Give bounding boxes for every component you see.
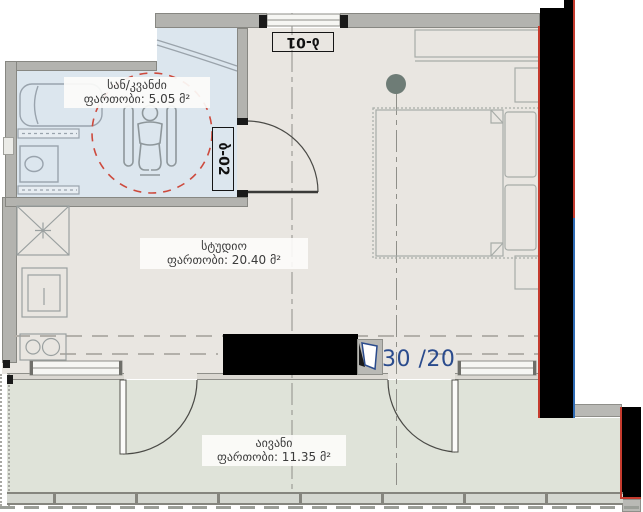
corner-column [622,407,641,499]
shaft-column [540,8,574,418]
wall-tick-balcony [7,375,13,384]
bathroom-floor-extension [157,28,237,71]
site-boundary-dashes [0,506,643,509]
studio-area: ფართობი: 20.40 მ² [140,254,308,268]
wall-balcony-band-3 [455,373,540,380]
wall-bathroom-bottom [5,197,248,207]
floor-plan: სან/კვანძი ფართობი: 5.05 მ² სტუდიო ფართო… [0,0,643,512]
corner-column-red-line [620,407,622,499]
doorstop-bath-bottom [237,190,248,197]
bathroom-label: სან/კვანძი ფართობი: 5.05 მ² [64,77,210,108]
tag-b01-text: ბ-01 [286,34,319,50]
doorstop-top-left [259,15,267,28]
section-marker-icon [357,339,383,375]
wall-niche [3,137,14,155]
wall-top-left-segment [155,13,267,28]
shaft-right-blue-line [573,218,575,418]
bathroom-area: ფართობი: 5.05 მ² [64,93,210,107]
bathroom-name: სან/კვანძი [64,79,210,93]
shaft-right-red-line [573,0,575,218]
wall-balcony-band-1 [7,373,124,380]
studio-name: სტუდიო [140,240,308,254]
tag-b02-text: ბ-02 [212,127,234,191]
wall-bathroom-top [5,61,157,71]
shaft-left-red-line [538,26,540,418]
balcony-left-hatch [0,374,10,506]
wall-bathroom-right [237,28,248,125]
tag-b01: ბ-01 [272,32,334,52]
balcony-name: აივანი [202,437,346,451]
wall-bathroom-left [5,61,17,207]
corner-column-red-bottom [622,497,641,499]
studio-label: სტუდიო ფართობი: 20.40 მ² [140,238,308,269]
studio-floor-doorgap [237,125,248,197]
balcony-railing [7,492,623,505]
wall-left [2,197,17,363]
wall-tick-left [3,360,10,368]
doorstop-top-right [340,15,348,28]
tv-cabinet-block [223,334,358,375]
unit-number: 30 /20 [382,349,455,371]
balcony-floor-right [540,418,622,492]
studio-floor-upper [247,28,540,197]
window-top [267,14,340,26]
balcony-area: ფართობი: 11.35 მ² [202,451,346,465]
balcony-label: აივანი ფართობი: 11.35 მ² [202,435,346,466]
wall-balcony-right-strip [574,404,622,417]
tag-b02: ბ-02 [212,127,234,191]
wall-top-right-segment [340,13,540,28]
doorstop-bath-top [237,118,248,125]
